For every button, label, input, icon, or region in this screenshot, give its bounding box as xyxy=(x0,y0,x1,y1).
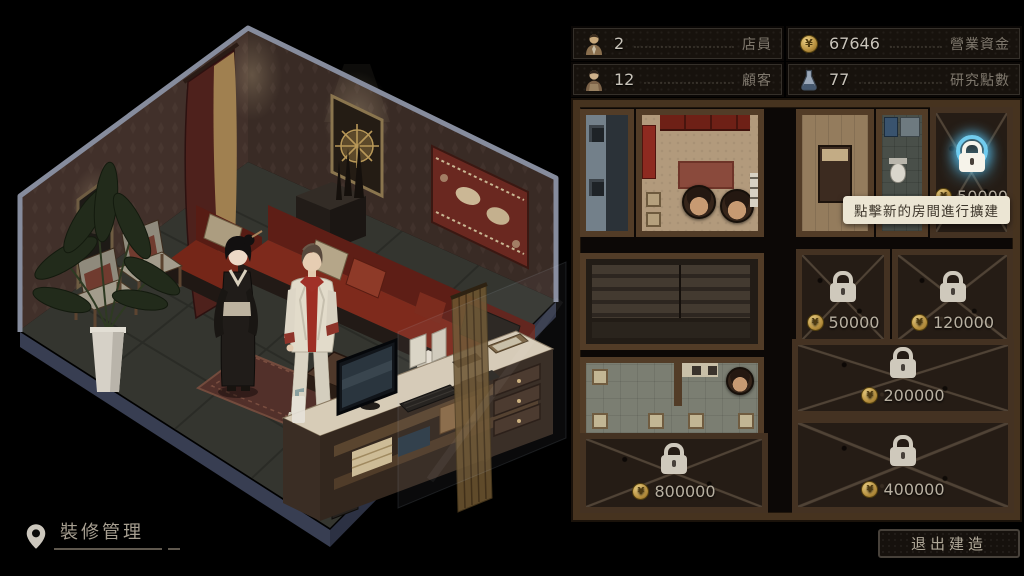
room-price: ¥ 50000 xyxy=(802,313,884,332)
stairs-top-view xyxy=(592,265,750,318)
room-price: ¥ 400000 xyxy=(798,480,1008,499)
coin-icon: ¥ xyxy=(632,483,649,500)
room-kitchen[interactable] xyxy=(580,109,634,237)
toilet-top-view xyxy=(890,163,906,183)
staff-label: 店員 xyxy=(742,34,772,54)
lock-icon xyxy=(830,283,856,302)
room-stairwell[interactable] xyxy=(580,253,764,350)
isometric-room-scene xyxy=(0,0,570,576)
stats-panel: 2 店員 ¥ 67646 營業資金 12 顧客 xyxy=(573,28,1020,95)
coin-icon: ¥ xyxy=(911,314,928,331)
locked-room-200000[interactable]: ¥ 200000 xyxy=(792,339,1014,417)
locked-room-800000[interactable]: ¥ 800000 xyxy=(580,433,768,513)
cabinet-top-view xyxy=(642,125,656,179)
staff-portrait-2 xyxy=(720,189,754,223)
research-count: 77 xyxy=(829,70,849,89)
sofa-top-view xyxy=(660,115,750,131)
build-hud: 2 店員 ¥ 67646 營業資金 12 顧客 xyxy=(573,28,1020,95)
lock-icon xyxy=(661,455,687,474)
location-label: 裝修管理 xyxy=(54,518,162,550)
funds-count: 67646 xyxy=(829,34,880,53)
room-lounge[interactable] xyxy=(636,109,764,237)
expand-tooltip: 點擊新的房間進行擴建 xyxy=(843,196,1010,224)
room-price: ¥ 200000 xyxy=(798,386,1008,405)
location-dash xyxy=(168,540,180,550)
coin-icon: ¥ xyxy=(861,387,878,404)
exit-build-button[interactable]: 退出建造 xyxy=(878,529,1020,558)
bed-top-view xyxy=(818,145,852,203)
locked-room-400000[interactable]: ¥ 400000 xyxy=(792,417,1014,513)
floorplan-map: ¥ 50000 ¥ 50000 ¥ 120000 xyxy=(573,100,1020,520)
research-label: 研究點數 xyxy=(950,70,1010,90)
room-price: ¥ 120000 xyxy=(898,313,1007,332)
customers-label: 顧客 xyxy=(742,70,772,90)
locked-room-120000[interactable]: ¥ 120000 xyxy=(892,249,1013,346)
coin-icon: ¥ xyxy=(807,314,824,331)
location-pin-icon xyxy=(26,523,46,550)
lock-icon xyxy=(940,283,966,302)
customers-count: 12 xyxy=(614,70,634,89)
staff-icon xyxy=(583,32,605,56)
lock-icon xyxy=(959,153,985,172)
funds-label: 營業資金 xyxy=(950,34,1010,54)
flask-icon xyxy=(798,68,820,92)
coin-icon: ¥ xyxy=(798,32,820,56)
staff-portrait-3 xyxy=(726,367,754,395)
rug-top-view xyxy=(678,161,734,189)
locked-room-50000[interactable]: ¥ 50000 xyxy=(796,249,890,346)
staff-count: 2 xyxy=(614,34,624,53)
customer-icon xyxy=(583,68,605,92)
counter-top-view xyxy=(682,363,718,377)
coin-icon: ¥ xyxy=(861,481,878,498)
room-price: ¥ 800000 xyxy=(586,482,762,501)
stat-staff: 2 店員 xyxy=(573,28,782,59)
stat-funds: ¥ 67646 營業資金 xyxy=(788,28,1020,59)
stat-research: 77 研究點數 xyxy=(788,64,1020,95)
stat-customers: 12 顧客 xyxy=(573,64,782,95)
staff-portrait-1 xyxy=(682,185,716,219)
location-indicator: 裝修管理 xyxy=(26,518,180,550)
game-screen: 裝修管理 2 店員 ¥ 67646 營業資金 xyxy=(0,0,1024,576)
lock-icon xyxy=(890,359,916,378)
room-dining[interactable] xyxy=(580,357,764,439)
door-top-view xyxy=(750,173,758,207)
lock-icon xyxy=(890,447,916,466)
